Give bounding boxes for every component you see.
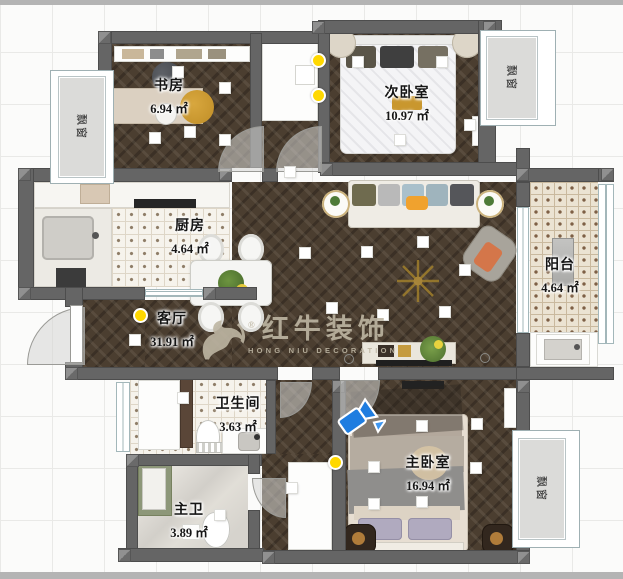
wall-corner: [18, 287, 31, 300]
light-marker[interactable]: [133, 308, 148, 323]
plant: [484, 196, 494, 206]
room-name: 客厅: [150, 308, 194, 328]
spotlight-marker: [130, 335, 140, 345]
room-area: 10.97 ㎡: [385, 105, 430, 124]
room-label-master-bath: 主卫 3.89 ㎡: [170, 499, 208, 541]
wall: [262, 550, 530, 564]
wall-corner: [98, 31, 111, 44]
ceiling-fan-icon: [394, 258, 442, 304]
bay-window-label: 飘窗: [74, 114, 90, 140]
wall-corner: [118, 549, 131, 562]
wall: [320, 162, 530, 176]
sofa-cushion: [378, 184, 400, 206]
wall: [318, 20, 502, 34]
wardrobe[interactable]: [288, 462, 332, 550]
watermark-name-cn: 红牛装饰: [262, 314, 390, 344]
books: [122, 49, 144, 59]
room-name: 阳台: [541, 254, 579, 274]
wall-corner: [65, 367, 78, 380]
wall: [516, 182, 530, 207]
room-area: 31.91 ㎡: [150, 331, 194, 350]
wall: [516, 367, 614, 380]
spotlight-marker: [215, 510, 225, 520]
shower-tray[interactable]: [142, 468, 166, 510]
spotlight-marker: [417, 497, 427, 507]
wall: [248, 454, 260, 474]
sofa-throw: [406, 196, 428, 210]
kitchen-sliding-door[interactable]: [145, 289, 203, 297]
watermark: ®红牛装饰 HONG NIU DECORATION: [196, 316, 398, 364]
spotlight-marker: [220, 83, 230, 93]
wall-corner: [517, 380, 530, 393]
room-label-bedroom2: 次卧室 10.97 ㎡: [385, 82, 430, 124]
room-area: 6.94 ㎡: [150, 98, 188, 117]
room-label-balcony: 阳台 4.64 ㎡: [541, 254, 579, 296]
spotlight-marker: [287, 483, 297, 493]
spotlight-marker: [353, 57, 363, 67]
light-marker[interactable]: [328, 455, 343, 470]
fridge[interactable]: [80, 184, 110, 204]
flowers: [434, 340, 443, 349]
spotlight-marker: [417, 421, 427, 431]
faucet: [574, 344, 580, 350]
range-hood: [134, 199, 196, 208]
wall-corner: [262, 551, 275, 564]
sofa-cushion: [426, 184, 448, 206]
top-border-bar: [0, 0, 623, 5]
washer-cabinet[interactable]: [138, 380, 180, 450]
wall: [516, 333, 530, 367]
wall-corner: [312, 21, 325, 34]
spotlight-marker: [460, 265, 470, 275]
wall: [378, 367, 530, 380]
room-label-kitchen: 厨房 4.64 ㎡: [171, 215, 209, 257]
spotlight-marker: [465, 120, 475, 130]
wall-corner: [18, 168, 31, 181]
kitchen-sink[interactable]: [42, 216, 94, 260]
wall-corner: [516, 168, 529, 181]
pillow: [380, 46, 414, 68]
plant: [330, 196, 340, 206]
light-marker[interactable]: [311, 53, 326, 68]
wall: [266, 380, 276, 454]
nightstand-decor: [352, 532, 365, 545]
wall: [126, 454, 262, 466]
spotlight-marker: [362, 247, 372, 257]
room-area: 3.63 ㎡: [216, 416, 261, 435]
spotlight-marker: [418, 237, 428, 247]
wall: [126, 454, 138, 562]
bottom-border-bar: [0, 572, 623, 579]
kitchen-counter-top[interactable]: [34, 182, 230, 208]
wall: [18, 168, 34, 300]
wall: [98, 31, 325, 44]
bay-window-label: 飘窗: [534, 476, 550, 502]
room-area: 4.64 ㎡: [171, 238, 209, 257]
spotlight-marker: [300, 248, 310, 258]
floor-plant: [420, 336, 446, 362]
bed-headboard: [342, 36, 454, 44]
spotlight-marker: [395, 135, 405, 145]
pillow: [408, 518, 452, 540]
sofa-cushion: [450, 184, 474, 206]
bay-window-study[interactable]: 飘窗: [50, 70, 114, 184]
books: [176, 49, 202, 59]
room-area: 16.94 ㎡: [406, 475, 451, 494]
spotlight-marker: [440, 307, 450, 317]
balcony-window[interactable]: [598, 184, 614, 344]
room-name: 次卧室: [385, 82, 430, 102]
wall: [65, 287, 83, 307]
spotlight-marker: [369, 499, 379, 509]
registered-mark: ®: [248, 320, 260, 330]
spotlight-marker: [472, 419, 482, 429]
faucet: [92, 232, 99, 239]
wall: [312, 367, 340, 380]
room-label-master-bedroom: 主卧室 16.94 ㎡: [406, 452, 451, 494]
balcony-slider[interactable]: [517, 207, 529, 333]
watermark-name-en: HONG NIU DECORATION: [248, 346, 398, 355]
sofa-cushion: [352, 184, 376, 206]
room-label-bathroom: 卫生间 3.63 ㎡: [216, 393, 261, 435]
room-name: 卫生间: [216, 393, 261, 413]
room-name: 书房: [150, 75, 188, 95]
console-decor: [398, 345, 411, 357]
spotlight-marker: [327, 303, 337, 313]
room-name: 主卫: [170, 499, 208, 519]
books: [150, 49, 164, 59]
wall-corner: [203, 287, 216, 300]
window[interactable]: [116, 382, 130, 452]
room-name: 主卧室: [406, 452, 451, 472]
spotlight-marker: [369, 462, 379, 472]
wall: [118, 548, 264, 562]
spotlight-marker: [285, 167, 295, 177]
entrance-door-leaf[interactable]: [70, 305, 83, 363]
room-name: 厨房: [171, 215, 209, 235]
floor-plan-canvas: 飘窗 飘窗 飘窗: [0, 0, 623, 579]
wall-corner: [601, 168, 614, 181]
room-label-study: 书房 6.94 ㎡: [150, 75, 188, 117]
camera-view-icon[interactable]: [334, 394, 386, 446]
bay-window-bedroom2[interactable]: 飘窗: [480, 30, 556, 126]
wall-corner: [517, 551, 530, 564]
room-label-living: 客厅 31.91 ㎡: [150, 308, 194, 350]
light-marker[interactable]: [311, 88, 326, 103]
room-area: 3.89 ㎡: [170, 522, 208, 541]
spotlight-marker: [185, 127, 195, 137]
stove[interactable]: [56, 268, 86, 287]
spotlight-marker: [178, 393, 188, 403]
nightstand-decor: [490, 532, 503, 545]
spotlight-marker: [150, 133, 160, 143]
room-area: 4.64 ㎡: [541, 277, 579, 296]
closet-shelf: [296, 66, 314, 84]
spotlight-marker: [437, 57, 447, 67]
bull-logo-icon: [196, 316, 248, 364]
spotlight-marker: [220, 135, 230, 145]
books: [208, 49, 226, 59]
bathroom-shelf: [180, 378, 193, 448]
spotlight-marker: [471, 463, 481, 473]
stool-ring: [480, 353, 490, 363]
bay-window-label: 飘窗: [504, 65, 520, 91]
wall-corner: [126, 454, 139, 467]
wall: [65, 367, 278, 380]
bay-window-master-bedroom[interactable]: 飘窗: [512, 430, 580, 548]
